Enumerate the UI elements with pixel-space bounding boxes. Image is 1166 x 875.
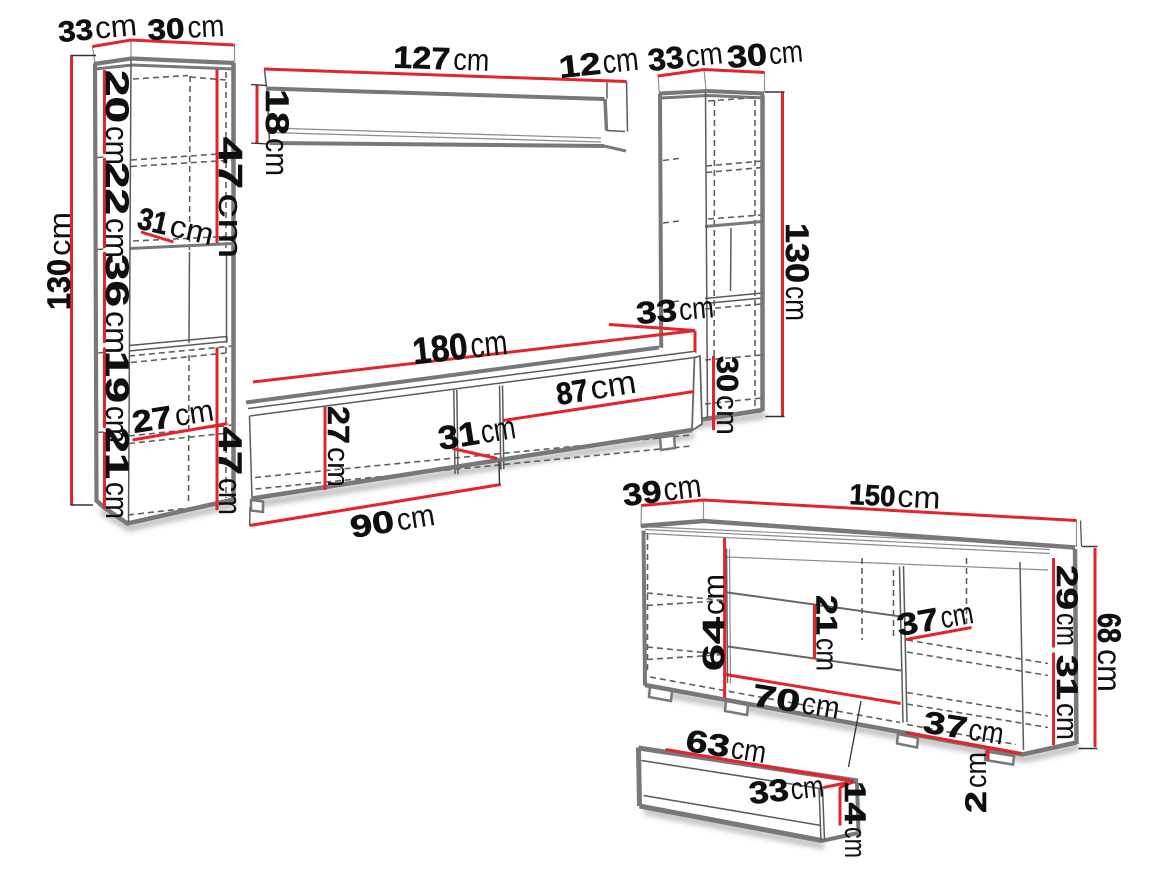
svg-text:cm: cm <box>799 685 842 726</box>
svg-text:cm: cm <box>99 126 135 165</box>
svg-text:cm: cm <box>93 7 138 46</box>
svg-text:cm: cm <box>394 497 437 538</box>
svg-text:cm: cm <box>601 40 641 81</box>
svg-text:180: 180 <box>411 325 470 372</box>
svg-text:cm: cm <box>789 768 825 806</box>
svg-text:cm: cm <box>468 321 509 366</box>
svg-text:33: 33 <box>57 14 95 49</box>
svg-text:cm: cm <box>99 482 135 519</box>
svg-text:27: 27 <box>321 406 356 444</box>
svg-text:cm: cm <box>729 730 769 770</box>
svg-text:cm: cm <box>211 193 249 259</box>
svg-text:29: 29 <box>1050 565 1083 610</box>
svg-text:cm: cm <box>42 212 77 256</box>
svg-text:130: 130 <box>41 259 77 310</box>
svg-text:30: 30 <box>147 13 186 47</box>
svg-text:47: 47 <box>212 137 249 189</box>
svg-text:30: 30 <box>726 37 769 75</box>
svg-text:33: 33 <box>747 772 790 811</box>
svg-text:47: 47 <box>212 427 248 475</box>
svg-text:36: 36 <box>99 254 135 307</box>
svg-text:21: 21 <box>810 595 843 635</box>
svg-text:cm: cm <box>1050 703 1085 740</box>
svg-text:cm: cm <box>838 827 873 858</box>
svg-text:37: 37 <box>894 601 941 643</box>
svg-text:20: 20 <box>99 70 135 123</box>
svg-text:cm: cm <box>478 408 518 450</box>
svg-text:12: 12 <box>557 46 602 85</box>
svg-text:70: 70 <box>750 677 803 719</box>
svg-text:21: 21 <box>99 427 135 479</box>
svg-text:130: 130 <box>779 223 815 283</box>
svg-text:cm: cm <box>710 395 745 435</box>
svg-text:14: 14 <box>838 781 871 824</box>
svg-text:cm: cm <box>99 311 135 354</box>
svg-text:30: 30 <box>710 356 745 392</box>
svg-text:18: 18 <box>259 89 295 135</box>
svg-text:33: 33 <box>646 39 685 78</box>
svg-text:cm: cm <box>767 33 804 71</box>
svg-text:37: 37 <box>921 704 970 745</box>
svg-text:64: 64 <box>696 616 731 671</box>
svg-text:cm: cm <box>696 574 731 615</box>
svg-text:cm: cm <box>321 447 356 487</box>
svg-text:cm: cm <box>186 8 225 45</box>
svg-text:150: 150 <box>849 479 897 513</box>
svg-text:cm: cm <box>587 363 638 407</box>
svg-text:cm: cm <box>1091 649 1128 692</box>
svg-text:cm: cm <box>1050 613 1085 646</box>
svg-text:22: 22 <box>99 162 135 215</box>
svg-text:cm: cm <box>212 478 248 515</box>
svg-text:cm: cm <box>958 752 993 788</box>
svg-text:68: 68 <box>1091 613 1127 643</box>
svg-text:cm: cm <box>810 638 845 671</box>
svg-text:39: 39 <box>621 473 664 512</box>
svg-text:cm: cm <box>897 479 942 516</box>
svg-text:33: 33 <box>635 293 679 331</box>
svg-text:cm: cm <box>259 138 295 176</box>
svg-text:31: 31 <box>1050 655 1083 700</box>
svg-text:63: 63 <box>683 723 732 764</box>
svg-text:27: 27 <box>130 399 175 440</box>
svg-text:cm: cm <box>661 467 703 508</box>
svg-text:cm: cm <box>172 393 216 434</box>
svg-text:cm: cm <box>937 595 976 635</box>
svg-text:cm: cm <box>684 35 724 74</box>
svg-text:2: 2 <box>960 791 993 813</box>
svg-text:cm: cm <box>677 289 715 327</box>
svg-text:31: 31 <box>435 414 481 457</box>
svg-text:cm: cm <box>966 712 1006 752</box>
svg-text:cm: cm <box>453 42 490 78</box>
svg-text:90: 90 <box>348 503 397 544</box>
svg-text:cm: cm <box>99 218 135 258</box>
svg-text:19: 19 <box>99 351 135 403</box>
svg-text:127: 127 <box>393 40 451 77</box>
svg-text:87: 87 <box>554 372 591 412</box>
svg-text:cm: cm <box>779 286 815 321</box>
